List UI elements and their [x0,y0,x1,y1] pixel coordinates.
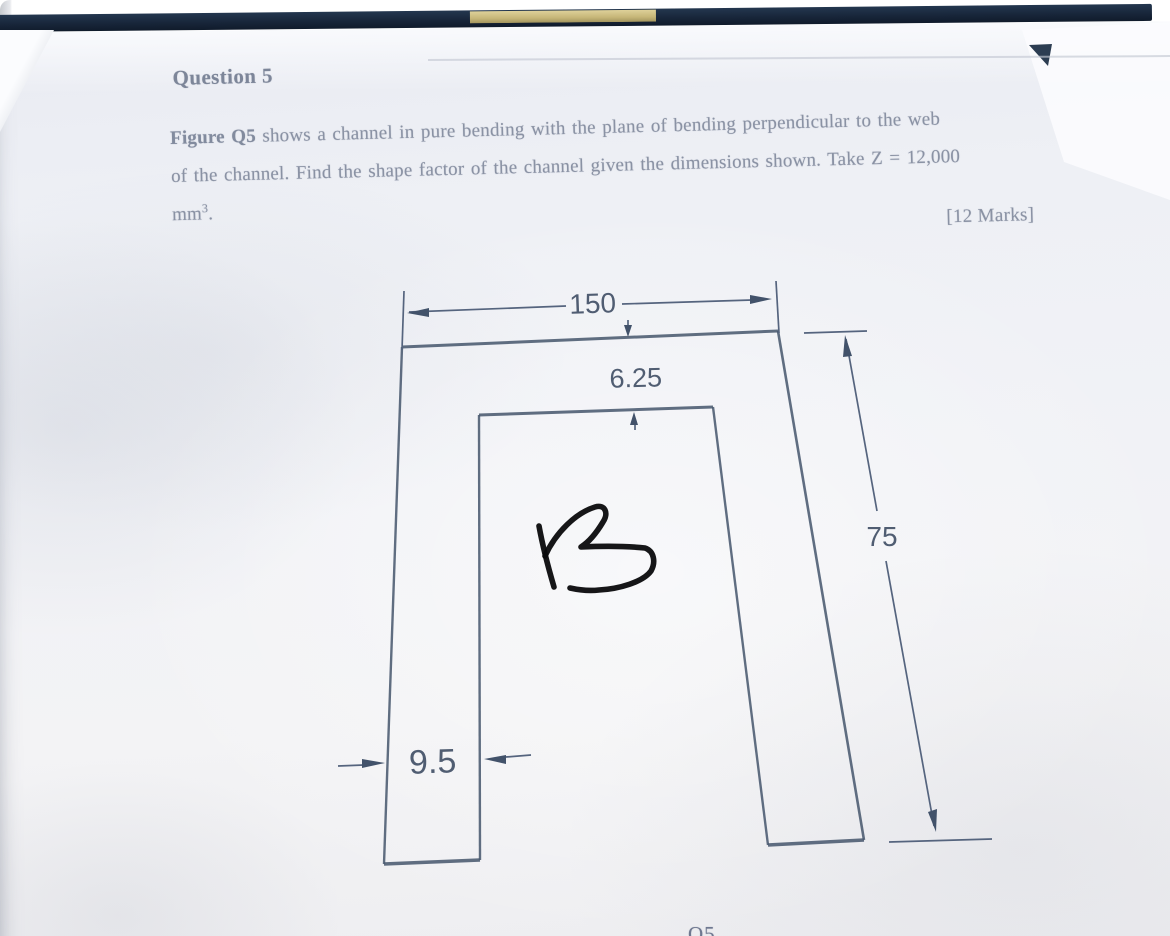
channel-top-edge [402,331,778,347]
ext-line-right [776,281,779,333]
channel-right-inner-edge [713,407,768,845]
dim-web-arrow-right-tail [506,755,531,757]
channel-left-outer-edge [384,347,402,864]
channel-left-leg-bottom [384,860,480,864]
handwritten-b-annotation [539,506,654,590]
ext-line-left [402,291,404,350]
handwritten-b-stroke-2 [545,506,654,590]
dim-width-label: 150 [569,287,617,320]
figure-caption-partial: Q5 [688,922,716,936]
figure-q5-diagram: 150 6.25 75 9.5 [0,0,1170,936]
dim-web-arrow-left-tail [338,765,364,766]
dim-width-line-left [409,306,566,312]
dim-web-thickness-label: 9.5 [408,742,457,782]
channel-right-outer-edge [778,331,864,840]
channel-outline [384,331,864,864]
arrow-flange-down [624,325,632,337]
channel-inner-top-edge [479,407,713,415]
ext-line-height-bottom [889,839,992,842]
photographed-exam-page: Question 5 Figure Q5 shows a channel in … [0,0,1170,936]
channel-right-leg-bottom [768,840,864,845]
dim-height-line-lower [886,561,934,826]
dim-height-line-upper [846,339,877,511]
arrow-width-left [407,308,429,317]
arrow-flange-up [630,412,638,425]
dim-height-label: 75 [866,521,897,552]
arrow-height-top [843,335,852,357]
ext-line-height-top [804,331,867,333]
dim-flange-thickness-label: 6.25 [609,362,662,393]
arrow-width-right [750,295,772,304]
channel-left-inner-edge [479,415,480,860]
arrow-web-right [484,755,506,764]
dim-width-line-right [622,300,752,304]
arrow-web-left [362,759,385,768]
arrow-height-bottom [928,809,937,832]
